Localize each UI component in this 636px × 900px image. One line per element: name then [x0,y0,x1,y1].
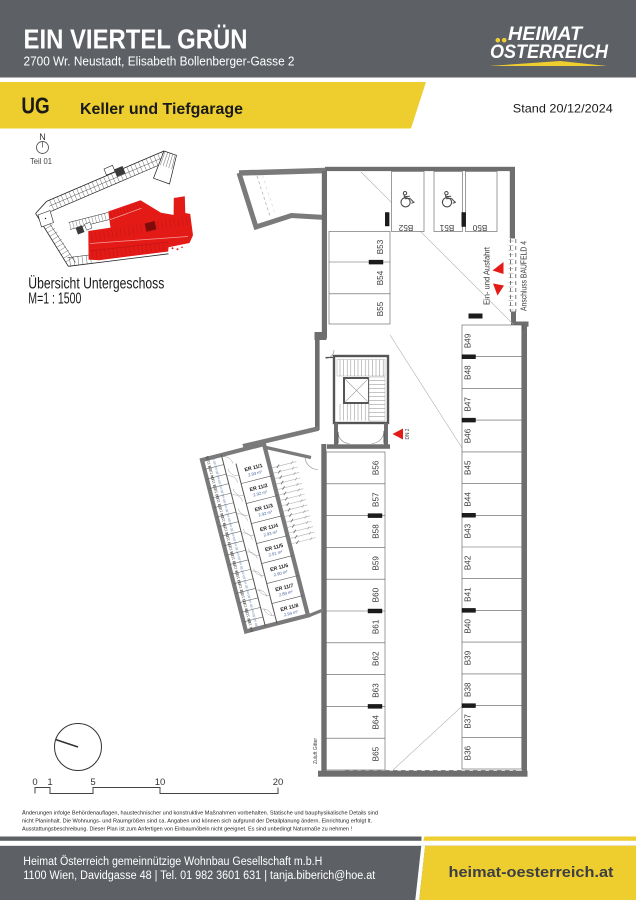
svg-text:B57: B57 [371,492,381,507]
svg-text:B56: B56 [371,460,381,475]
svg-text:B40: B40 [463,619,473,634]
svg-text:heimat-oesterreich.at: heimat-oesterreich.at [449,864,614,881]
svg-text:B46: B46 [463,428,473,443]
svg-text:B45: B45 [463,460,473,475]
svg-text:B59: B59 [371,556,381,571]
svg-text:B53: B53 [375,239,385,254]
svg-text:B48: B48 [463,365,473,380]
svg-text:B49: B49 [463,333,473,348]
svg-text:B42: B42 [463,555,473,570]
svg-text:Ein- und Ausfahrt: Ein- und Ausfahrt [483,246,492,305]
svg-text:Anschluss BAUFELD 4: Anschluss BAUFELD 4 [520,241,529,311]
svg-text:Heimat Österreich gemeinnützig: Heimat Österreich gemeinnützige Wohnbau … [23,856,322,868]
svg-text:B60: B60 [371,588,381,603]
svg-text:B55: B55 [375,301,385,316]
svg-text:B37: B37 [463,714,473,729]
svg-text:B62: B62 [371,651,381,666]
svg-text:20: 20 [273,777,284,788]
svg-text:B61: B61 [371,619,381,634]
svg-text:B43: B43 [463,524,473,539]
svg-text:nicht Planinhalt. Die Wohnungs: nicht Planinhalt. Die Wohnungs- und Raum… [22,819,372,825]
svg-text:B64: B64 [371,715,381,730]
svg-text:Zuluft Gitter: Zuluft Gitter [313,738,319,764]
svg-text:OSTERREICH: OSTERREICH [490,41,609,63]
svg-text:5: 5 [90,777,95,788]
svg-text:B38: B38 [463,682,473,697]
svg-text:EIN VIERTEL GRÜN: EIN VIERTEL GRÜN [24,24,248,55]
svg-text:Änderungen infolge Behördenauf: Änderungen infolge Behördenauflagen, hau… [22,810,378,817]
svg-text:B41: B41 [463,587,473,602]
svg-text:M=1 : 1500: M=1 : 1500 [28,291,81,308]
svg-text:1100 Wien, Davidgasse 48 | Tel: 1100 Wien, Davidgasse 48 | Tel. 01 982 3… [23,870,376,882]
svg-text:2700 Wr. Neustadt, Elisabeth B: 2700 Wr. Neustadt, Elisabeth Bollenberge… [24,55,295,69]
svg-text:Teil 01: Teil 01 [30,156,52,166]
svg-text:Keller und Tiefgarage: Keller und Tiefgarage [80,101,243,118]
svg-text:B39: B39 [463,650,473,665]
svg-text:B52: B52 [398,223,413,233]
svg-text:Ausstattungsbeschreibung. Dies: Ausstattungsbeschreibung. Dieser Plan is… [22,827,352,833]
svg-text:B65: B65 [371,747,381,762]
svg-text:N: N [39,132,46,142]
svg-text:B47: B47 [463,397,473,412]
svg-text:UG: UG [21,92,49,118]
svg-text:B44: B44 [463,492,473,507]
svg-text:Stand 20/12/2024: Stand 20/12/2024 [513,101,613,115]
svg-text:DN 2: DN 2 [405,428,411,439]
svg-text:B63: B63 [371,683,381,698]
svg-text:B50: B50 [472,223,487,233]
svg-text:B58: B58 [371,524,381,539]
svg-text:10: 10 [155,777,166,788]
svg-text:B51: B51 [439,223,454,233]
svg-text:B54: B54 [375,270,385,285]
svg-text:B36: B36 [463,746,473,761]
svg-text:1: 1 [47,777,52,788]
svg-text:0: 0 [32,777,37,788]
